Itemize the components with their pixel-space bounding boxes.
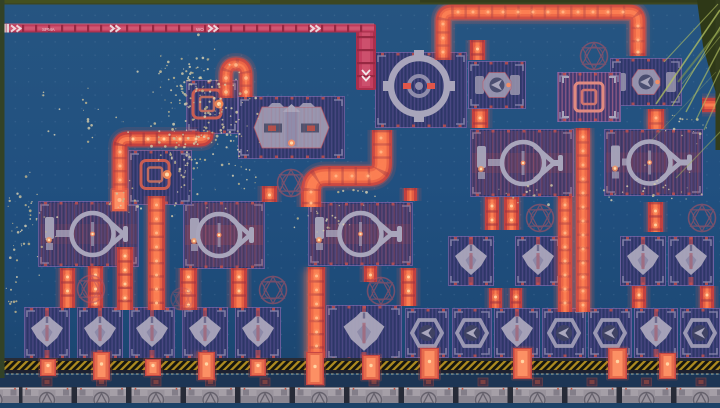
svg-text:SPMA: SPMA [42, 27, 55, 32]
svg-text:WO: WO [196, 27, 204, 32]
